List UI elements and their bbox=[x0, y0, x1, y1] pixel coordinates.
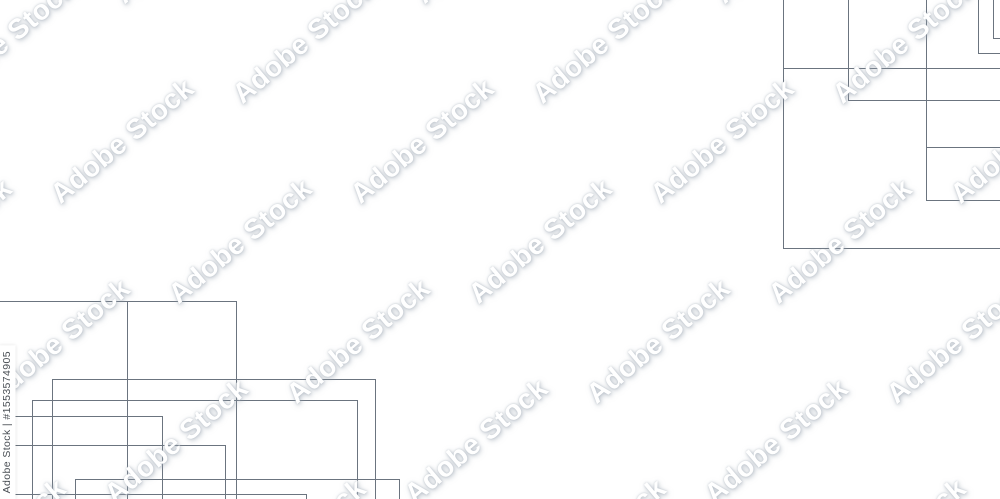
vertical-line bbox=[399, 479, 400, 499]
vertical-line bbox=[225, 445, 226, 499]
horizontal-line bbox=[926, 147, 1000, 148]
vertical-line bbox=[848, 0, 849, 100]
vertical-line bbox=[162, 416, 163, 499]
vertical-line bbox=[127, 301, 128, 499]
vertical-line bbox=[783, 0, 784, 248]
horizontal-line bbox=[0, 416, 162, 417]
horizontal-line bbox=[0, 301, 237, 302]
horizontal-line bbox=[978, 53, 1000, 54]
horizontal-line bbox=[848, 100, 1000, 101]
vertical-line bbox=[357, 400, 358, 499]
vertical-line bbox=[32, 400, 33, 499]
horizontal-line bbox=[783, 68, 1000, 69]
vertical-line bbox=[926, 0, 927, 200]
vertical-line bbox=[306, 494, 307, 499]
vertical-line bbox=[993, 0, 994, 38]
horizontal-line bbox=[926, 200, 1000, 201]
vertical-line bbox=[52, 379, 53, 499]
horizontal-line bbox=[993, 38, 1000, 39]
horizontal-line bbox=[0, 494, 306, 495]
horizontal-line bbox=[783, 248, 1000, 249]
vertical-line bbox=[75, 479, 76, 499]
horizontal-line bbox=[32, 400, 357, 401]
vertical-line bbox=[978, 0, 979, 53]
stock-image-preview: Adobe StockAdobe StockAdobe StockAdobe S… bbox=[0, 0, 1000, 499]
watermark-id-label: Adobe Stock | #1553574905 bbox=[0, 345, 16, 499]
vertical-line bbox=[375, 379, 376, 499]
horizontal-line bbox=[52, 379, 375, 380]
horizontal-line bbox=[0, 445, 225, 446]
geometric-squares-artwork bbox=[0, 0, 1000, 499]
vertical-line bbox=[236, 301, 237, 499]
